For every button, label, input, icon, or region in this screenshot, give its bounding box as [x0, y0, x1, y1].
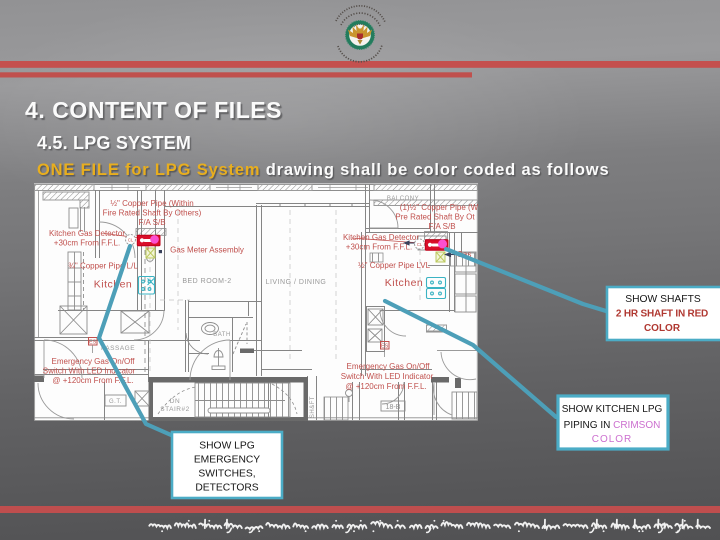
svg-text:BALCONY: BALCONY [387, 196, 419, 202]
svg-text:+30cm From F.F.L.: +30cm From F.F.L. [54, 239, 120, 248]
svg-text:COLOR: COLOR [592, 434, 633, 445]
svg-text:SHOW SHAFTS: SHOW SHAFTS [625, 294, 701, 305]
svg-text:STAIR#2: STAIR#2 [160, 406, 189, 413]
svg-text:+30cm From F.F.L.: +30cm From F.F.L. [346, 243, 412, 252]
svg-text:SH&FT: SH&FT [310, 396, 316, 418]
svg-text:ES: ES [381, 344, 389, 350]
svg-text:DETECTORS: DETECTORS [195, 483, 258, 494]
svg-text:Emergency Gas On/Off: Emergency Gas On/Off [52, 357, 136, 366]
svg-text:Kitchen Gas Detector: Kitchen Gas Detector [49, 229, 125, 238]
svg-text:DN: DN [170, 398, 180, 405]
svg-text:Emergency Gas On/Off: Emergency Gas On/Off [347, 362, 431, 371]
svg-text:Kitchen: Kitchen [385, 277, 424, 289]
svg-text:(1)½" Copper Pipe (Wit: (1)½" Copper Pipe (Wit [400, 203, 483, 212]
svg-text:½" Copper Pipe LVL: ½" Copper Pipe LVL [358, 261, 431, 270]
svg-text:SHOW LPG: SHOW LPG [199, 441, 255, 452]
svg-text:@ +120cm From F.F.L.: @ +120cm From F.F.L. [345, 382, 426, 391]
svg-text:¾" Copper Pipe L/L: ¾" Copper Pipe L/L [68, 262, 138, 271]
svg-text:EMERGENCY: EMERGENCY [194, 455, 260, 466]
svg-text:18-B: 18-B [386, 404, 401, 411]
svg-text:Gas Meter Assembly: Gas Meter Assembly [170, 246, 244, 255]
svg-text:Fire Rated Shaft By Others): Fire Rated Shaft By Others) [103, 209, 202, 218]
svg-text:BATH: BATH [213, 332, 231, 338]
svg-text:CL: CL [417, 242, 423, 247]
svg-text:BED ROOM-2: BED ROOM-2 [182, 278, 231, 285]
svg-text:Pre Rated Shaft By Ot: Pre Rated Shaft By Ot [395, 213, 475, 222]
svg-text:ES: ES [89, 340, 97, 346]
svg-text:F/A S/B: F/A S/B [138, 218, 165, 227]
svg-text:G.T.: G.T. [109, 399, 122, 405]
svg-text:F/A S/B: F/A S/B [428, 222, 455, 231]
svg-text:½" Copper Pipe (Within: ½" Copper Pipe (Within [110, 199, 193, 208]
svg-text:CL: CL [128, 238, 134, 243]
svg-text:Switch With LED Indicator: Switch With LED Indicator [341, 372, 434, 381]
svg-text:LIVING / DINING: LIVING / DINING [266, 279, 327, 286]
svg-text:Kitchen: Kitchen [94, 279, 133, 291]
svg-text:2 HR SHAFT IN RED: 2 HR SHAFT IN RED [616, 309, 708, 320]
svg-text:SHOW KITCHEN LPG: SHOW KITCHEN LPG [562, 404, 663, 415]
svg-text:Kitchen Gas Detector: Kitchen Gas Detector [343, 233, 419, 242]
svg-text:COLOR: COLOR [644, 323, 681, 334]
svg-text:SWITCHES,: SWITCHES, [198, 469, 255, 480]
svg-text:PIPING IN CRIMSON: PIPING IN CRIMSON [564, 420, 661, 431]
svg-text:Switch With LED Indicator: Switch With LED Indicator [43, 367, 136, 376]
